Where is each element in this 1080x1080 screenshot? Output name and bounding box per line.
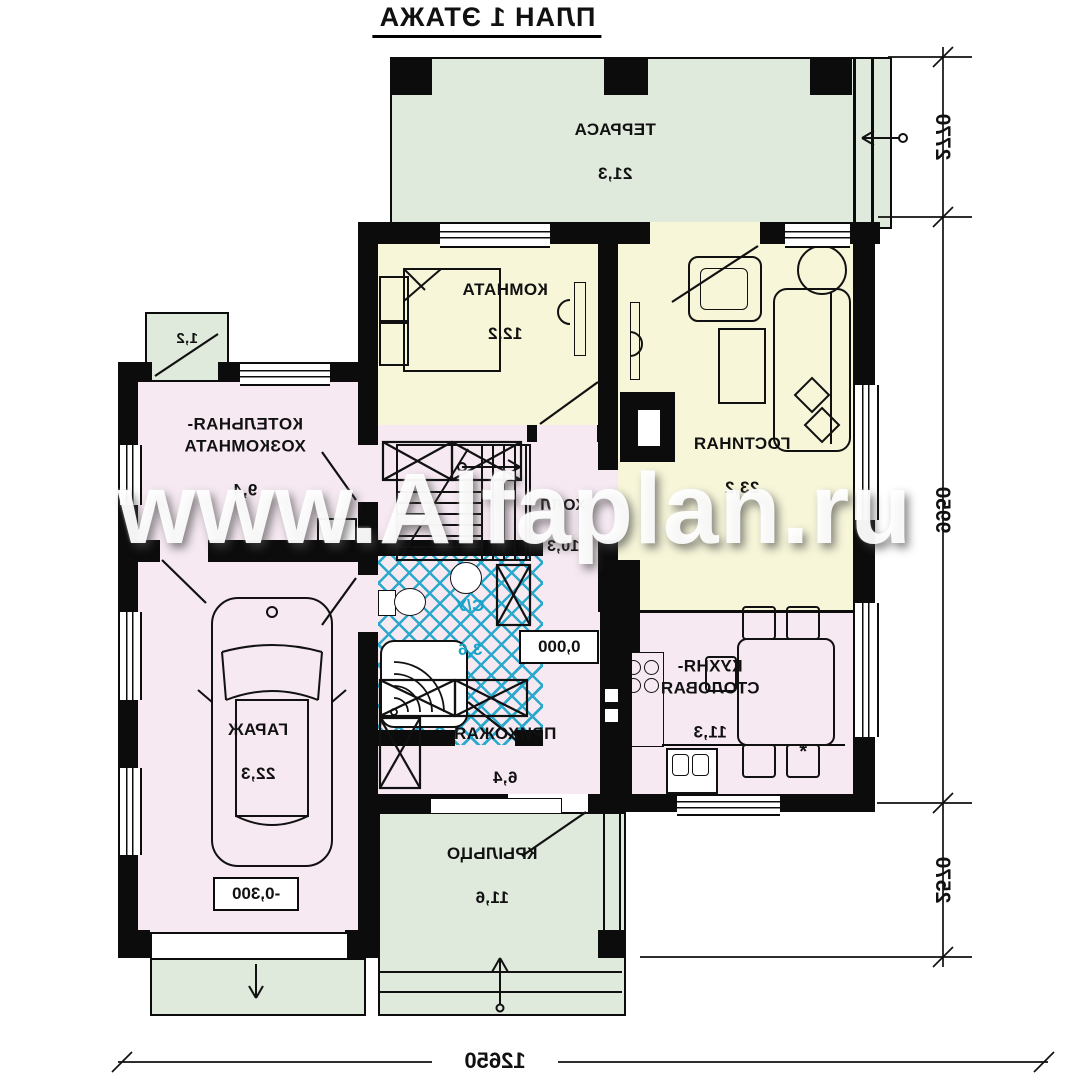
tv-arc: [630, 332, 642, 356]
room-area: 3,6: [456, 639, 485, 661]
apron-arrow: [249, 964, 263, 998]
room-label-porch: КРЫЛЬЦО 11,6: [447, 821, 538, 931]
page-title: ПЛАН 1 ЭТАЖА: [373, 2, 602, 38]
room-name: КОМНАТА: [462, 279, 548, 301]
dim-right-2770: 2770: [928, 82, 954, 192]
room-area: 1,2: [176, 328, 198, 348]
room-name: ПРИХОЖАЯ: [454, 723, 557, 745]
room-name: ТЕРРАСА: [574, 119, 656, 141]
floor-plan: ПЛАН 1 ЭТАЖА: [0, 0, 1080, 1080]
sofa-cushion: [805, 408, 839, 442]
terrace-entry-arrow: [862, 131, 907, 145]
room-area: 12,2: [462, 323, 548, 345]
level-value: -0,300: [232, 884, 280, 904]
pad-area-label: 1,2: [176, 309, 198, 368]
sofa-cushion: [795, 378, 829, 412]
mirror-arc: [558, 300, 570, 324]
room-label-terrace: ТЕРРАСА 21,3: [574, 97, 656, 207]
room-label-garage: ГАРАЖ 22,3: [228, 697, 288, 807]
room-label-kitchen: КУХНЯ- СТОЛОВАЯ 11,3: [661, 634, 760, 767]
room-label-bedroom: КОМНАТА 12,2: [462, 257, 548, 367]
room-name: ГАРАЖ: [228, 719, 288, 741]
room-name: С/У: [456, 595, 485, 617]
room-area: 11,3: [661, 722, 760, 744]
room-area: 6,4: [454, 767, 557, 789]
room-name: КРЫЛЬЦО: [447, 843, 538, 865]
star-mark: *: [799, 713, 807, 791]
room-label-hallway: ПРИХОЖАЯ 6,4: [454, 701, 557, 811]
dim-bottom-12650: 12650: [464, 1048, 525, 1074]
room-label-bathroom: С/У 3,6: [456, 573, 485, 683]
dim-right-2570: 2570: [928, 825, 954, 935]
level-mark-main: 0,000: [519, 630, 599, 664]
pillow-fold: [404, 269, 425, 290]
level-value: 0,000: [538, 637, 581, 657]
watermark: www.Alfaplan.ru: [55, 452, 975, 567]
room-area: 22,3: [228, 763, 288, 785]
porch-steps: [378, 958, 622, 1012]
level-mark-garage: -0,300: [213, 877, 299, 911]
room-area: 21,3: [574, 163, 656, 185]
room-name: КУХНЯ- СТОЛОВАЯ: [661, 656, 760, 700]
room-area: 11,6: [447, 887, 538, 909]
